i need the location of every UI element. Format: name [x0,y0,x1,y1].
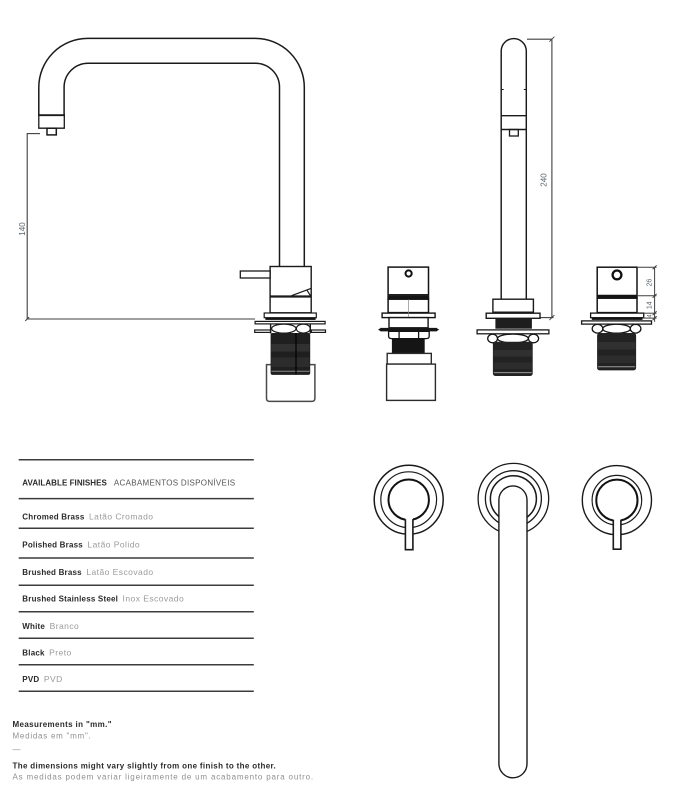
svg-text:AVAILABLE FINISHESACABAMENTOS: AVAILABLE FINISHESACABAMENTOS DISPONÍVEI… [22,479,235,488]
svg-text:Brushed BrassLatão Escovado: Brushed BrassLatão Escovado [22,567,153,577]
svg-text:4: 4 [648,314,654,318]
svg-text:Chromed BrassLatão Cromado: Chromed BrassLatão Cromado [22,512,153,522]
svg-text:WhiteBranco: WhiteBranco [22,621,79,631]
svg-text:Polished BrassLatão Polido: Polished BrassLatão Polido [22,540,140,550]
svg-text:14: 14 [647,301,654,309]
svg-text:—: — [13,745,21,754]
svg-text:As medidas podem variar ligeir: As medidas podem variar ligeiramente de … [13,773,314,782]
svg-text:Brushed Stainless SteelInox Es: Brushed Stainless SteelInox Escovado [22,594,184,604]
svg-text:BlackPreto: BlackPreto [22,648,71,658]
svg-text:240: 240 [540,173,549,187]
svg-text:PVDPVD: PVDPVD [22,674,62,684]
svg-text:Medidas em "mm".: Medidas em "mm". [13,732,92,741]
svg-text:140: 140 [18,222,27,236]
svg-text:26: 26 [647,279,654,287]
svg-text:Measurements in "mm.": Measurements in "mm." [13,720,112,729]
svg-text:The dimensions might vary slig: The dimensions might vary slightly from … [13,762,277,771]
